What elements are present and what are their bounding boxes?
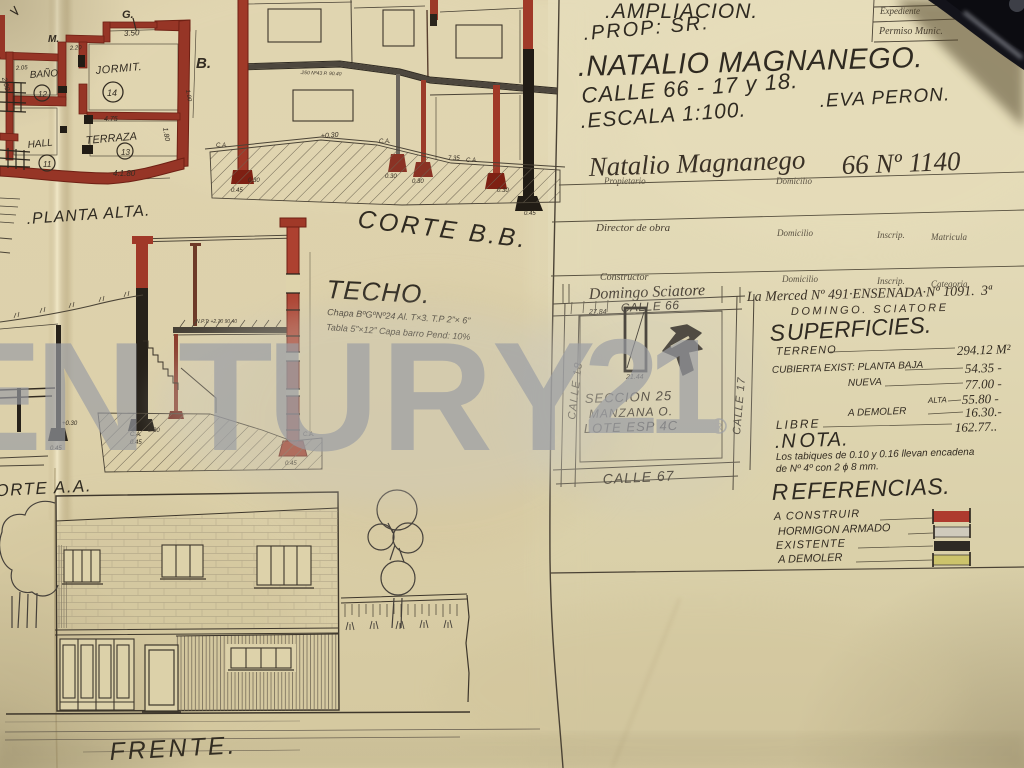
svg-text:M.: M. (48, 34, 59, 45)
svg-text:Y: Y (492, 310, 595, 483)
svg-text:0.30: 0.30 (497, 188, 509, 194)
svg-text:0.45: 0.45 (524, 211, 536, 217)
svg-text:0.30: 0.30 (385, 174, 397, 180)
svg-text:Propietario: Propietario (603, 176, 646, 186)
svg-text:NUEVA: NUEVA (848, 377, 883, 389)
svg-text:T: T (178, 310, 273, 483)
svg-text:A DEMOLER: A DEMOLER (846, 406, 907, 419)
svg-text:B.: B. (196, 55, 211, 72)
svg-text:77.00 -: 77.00 - (965, 376, 1002, 392)
svg-text:R: R (381, 310, 493, 483)
svg-text:Inscrip.: Inscrip. (876, 230, 905, 240)
svg-text:2.05: 2.05 (15, 65, 29, 72)
svg-text:66 Nº 1140: 66 Nº 1140 (841, 146, 961, 180)
svg-text:162.77..: 162.77.. (955, 419, 998, 435)
svg-text:11: 11 (43, 160, 51, 169)
svg-text:294.12 M²: 294.12 M² (957, 341, 1012, 358)
svg-text:G.: G. (122, 9, 134, 21)
svg-text:7.35: 7.35 (448, 156, 460, 162)
svg-text:16.30.-: 16.30.- (965, 404, 1002, 420)
svg-text:R: R (715, 422, 722, 433)
svg-text:13: 13 (121, 148, 130, 157)
svg-text:ALTA: ALTA (927, 395, 947, 405)
svg-text:C.A.: C.A. (466, 158, 478, 164)
svg-text:54.35 -: 54.35 - (965, 360, 1002, 376)
svg-text:U: U (267, 310, 379, 483)
svg-text:+0.30: +0.30 (321, 132, 339, 140)
svg-text:N: N (35, 310, 147, 483)
svg-text:0.30: 0.30 (248, 178, 260, 184)
svg-text:14: 14 (107, 88, 117, 98)
svg-text:3.50: 3.50 (124, 28, 141, 38)
svg-text:Director de obra: Director de obra (595, 222, 671, 234)
svg-text:Constructor: Constructor (600, 272, 648, 283)
svg-text:1: 1 (648, 311, 723, 462)
svg-text:0.30: 0.30 (148, 428, 160, 434)
svg-text:12: 12 (38, 90, 47, 99)
svg-text:Inscrip.: Inscrip. (876, 276, 905, 286)
svg-text:A DEMOLER: A DEMOLER (776, 552, 843, 566)
svg-text:4.75: 4.75 (104, 116, 118, 123)
svg-text:TECHO.: TECHO. (326, 274, 432, 309)
svg-text:Matricula: Matricula (930, 232, 967, 242)
svg-text:Domicilio: Domicilio (775, 176, 812, 186)
svg-text:EXISTENTE: EXISTENTE (776, 538, 847, 552)
svg-text:Domicilio: Domicilio (776, 228, 813, 238)
svg-text:C.A.: C.A. (216, 143, 228, 149)
svg-text:C.A.: C.A. (379, 139, 391, 145)
svg-text:2.20: 2.20 (69, 45, 83, 52)
svg-text:0.30: 0.30 (412, 179, 424, 185)
svg-text:4:1.80: 4:1.80 (113, 169, 136, 178)
svg-text:.N OTA.: .N OTA. (774, 428, 849, 453)
svg-text:TERRENO: TERRENO (776, 344, 837, 358)
svg-text:Domicilio: Domicilio (781, 274, 818, 284)
svg-text:0.45: 0.45 (231, 188, 243, 194)
